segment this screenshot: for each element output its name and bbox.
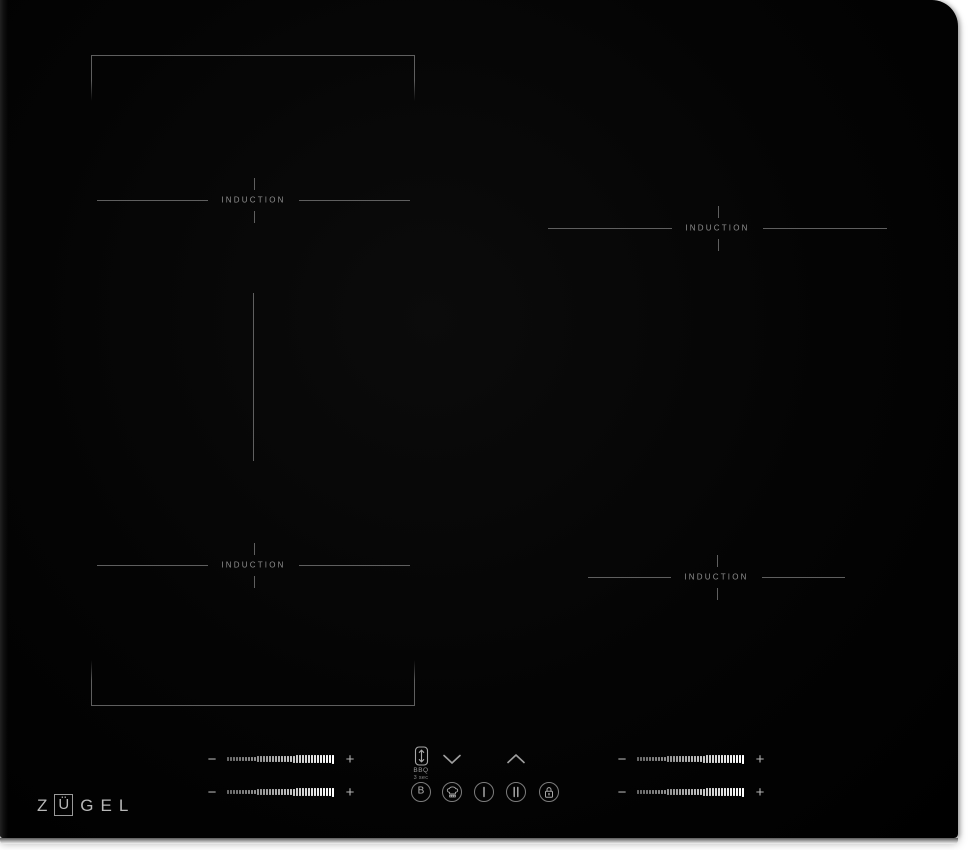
double-bar-icon [506,782,526,802]
zone-tick [254,543,255,555]
zone-line [588,577,671,578]
zone-line [97,200,208,201]
zone-line [548,228,672,229]
plus-button[interactable]: + [343,785,357,800]
cooktop-surface: INDUCTION INDUCTION INDUCTION INDUCTION … [0,0,958,838]
bracket-line [91,55,415,56]
zone-label: INDUCTION [208,561,298,569]
flex-zone-bracket-top [91,55,415,101]
flex-bridge-label: BBQ [413,767,428,775]
chef-hat-icon [442,782,462,802]
power-button[interactable] [474,782,494,802]
chevron-down-icon [441,752,463,766]
minus-button[interactable]: − [615,785,629,800]
zone-tick [254,576,255,588]
zone-line [762,577,845,578]
minus-button[interactable]: − [615,752,629,767]
zone-marker-right-top: INDUCTION [548,228,887,229]
zone-line [299,565,410,566]
zone-label: INDUCTION [671,573,761,581]
logo-letter: E [100,797,111,814]
bracket-line [91,55,92,101]
bracket-line [414,660,415,706]
zone-line [299,200,410,201]
zone-marker-left-top: INDUCTION [97,200,410,201]
pause-button[interactable] [506,782,526,802]
bracket-line [414,55,415,101]
child-lock-button[interactable] [539,782,559,802]
logo-letter: L [119,797,128,814]
zone-line [763,228,887,229]
plus-button[interactable]: + [343,752,357,767]
keep-warm-button[interactable] [442,782,462,802]
padlock-icon [539,782,559,802]
power-slider-left-top[interactable]: − + [205,748,357,770]
power-slider-right-bottom[interactable]: − + [615,781,767,803]
flex-bridge-sublabel: 3 sec [414,775,429,781]
plus-button[interactable]: + [753,752,767,767]
slider-track[interactable] [227,788,335,797]
minus-button[interactable]: − [205,785,219,800]
plus-button[interactable]: + [753,785,767,800]
power-slider-left-bottom[interactable]: − + [205,781,357,803]
zone-tick [717,555,718,567]
slider-track[interactable] [227,755,335,764]
brand-logo: Z Ü G E L [37,794,128,816]
logo-letter: G [80,797,93,814]
slider-track[interactable] [637,755,745,764]
zone-marker-right-bottom: INDUCTION [588,577,845,578]
zone-tick [718,239,719,251]
power-slider-right-top[interactable]: − + [615,748,767,770]
chevron-up-icon [505,752,527,766]
logo-letter: Z [37,797,47,814]
booster-button[interactable]: B [411,782,431,802]
flex-bridge-arrows-icon [414,746,429,766]
single-bar-icon [474,782,494,802]
cooktop-front-edge [0,838,958,844]
zone-tick [717,588,718,600]
flex-bridge-button[interactable]: BBQ 3 sec [406,746,436,781]
zone-label: INDUCTION [208,196,298,204]
minus-button[interactable]: − [205,752,219,767]
zone-tick [718,206,719,218]
zone-label: INDUCTION [672,224,762,232]
level-up-button[interactable] [505,752,527,766]
slider-track[interactable] [637,788,745,797]
zone-line [97,565,208,566]
booster-label: B [418,787,425,797]
bracket-line [91,705,415,706]
zone-marker-left-bottom: INDUCTION [97,565,410,566]
logo-letter-boxed: Ü [54,794,73,816]
flex-zone-divider-line [253,293,254,461]
zone-tick [254,178,255,190]
bracket-line [91,660,92,706]
circled-b-icon: B [411,782,431,802]
zone-tick [254,211,255,223]
level-down-button[interactable] [441,752,463,766]
flex-zone-bracket-bottom [91,660,415,706]
